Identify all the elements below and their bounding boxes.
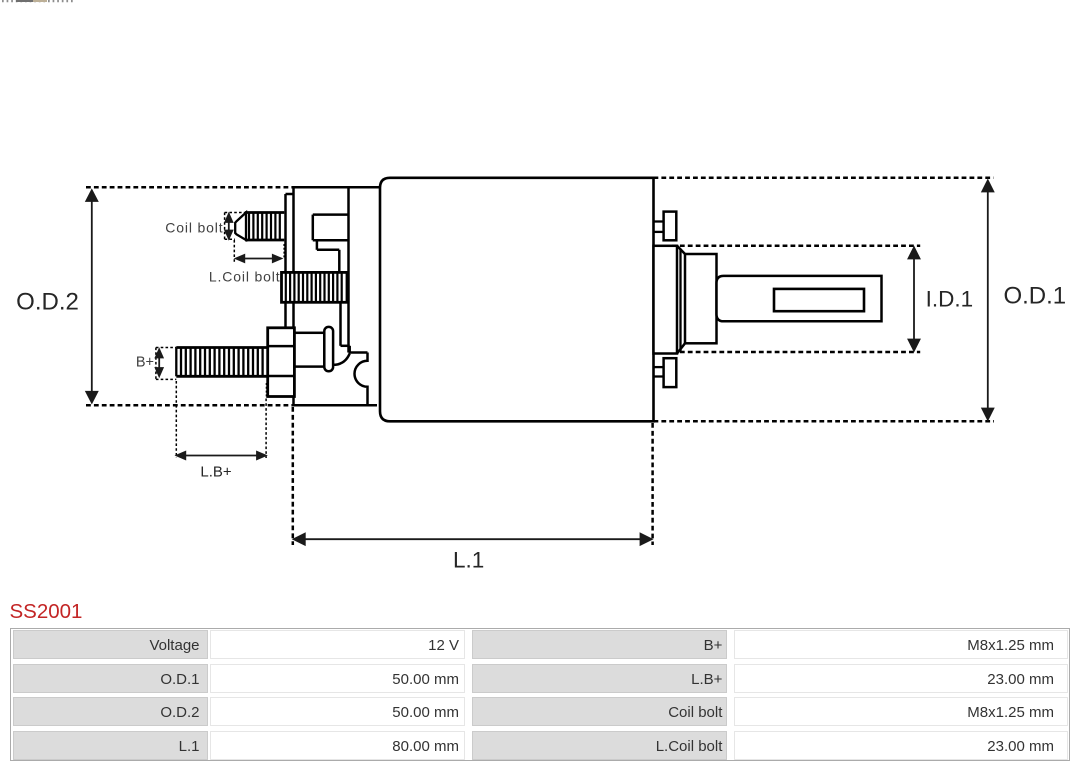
svg-text:Coil bolt: Coil bolt bbox=[165, 220, 223, 236]
svg-text:B+: B+ bbox=[136, 355, 154, 371]
svg-text:L.Coil bolt: L.Coil bolt bbox=[209, 269, 281, 285]
svg-text:L.1: L.1 bbox=[453, 548, 484, 573]
svg-text:O.D.1: O.D.1 bbox=[1003, 283, 1066, 310]
svg-text:L.B+: L.B+ bbox=[200, 464, 232, 481]
svg-text:O.D.2: O.D.2 bbox=[16, 289, 79, 316]
svg-text:I.D.1: I.D.1 bbox=[926, 287, 974, 312]
